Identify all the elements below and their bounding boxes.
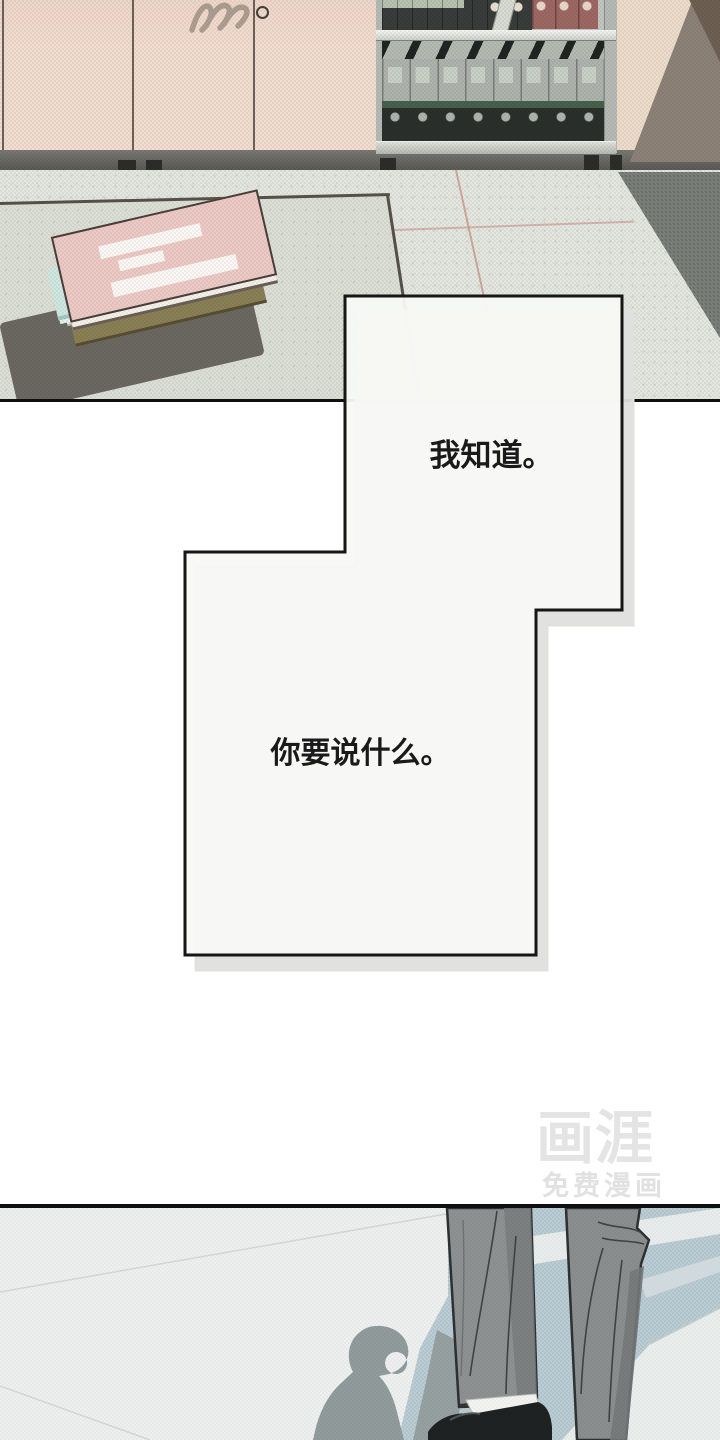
file-box-dark-band bbox=[382, 108, 604, 141]
red-binder-holes bbox=[532, 0, 598, 13]
shelf-post bbox=[604, 0, 617, 153]
bubble-text-bottom: 你要说什么。 bbox=[185, 736, 536, 772]
book-stack bbox=[0, 190, 330, 400]
shadow-halftone bbox=[313, 1326, 408, 1440]
panel-bottom-legs-scene bbox=[0, 1204, 720, 1440]
shelf-board bbox=[376, 30, 616, 41]
file-box-tops bbox=[382, 41, 604, 59]
binder-green-caps bbox=[382, 0, 464, 8]
cabinet-seam bbox=[132, 0, 134, 152]
panel-top-office-scene bbox=[0, 0, 720, 402]
scribble-shadow bbox=[186, 0, 270, 34]
watermark-tagline: 免费漫画 bbox=[542, 1164, 666, 1203]
shelf-board-bottom bbox=[376, 141, 616, 156]
shelf-foot bbox=[584, 155, 599, 171]
bubble-text-top: 我知道。 bbox=[353, 437, 630, 474]
comic-page: 我知道。 你要说什么。 画涯 免费漫画 bbox=[0, 0, 720, 1440]
file-box-green-strip bbox=[382, 101, 604, 108]
tile-line bbox=[0, 1214, 446, 1292]
tile-line bbox=[0, 1386, 150, 1440]
file-box-row bbox=[382, 41, 604, 141]
shelf-foot bbox=[610, 155, 622, 171]
legs-scene bbox=[0, 1208, 720, 1440]
metal-shelf-unit bbox=[376, 0, 616, 153]
file-box-labels bbox=[382, 67, 604, 83]
cabinet-seam bbox=[2, 0, 4, 152]
watermark-logo: 画涯 bbox=[536, 1091, 654, 1175]
